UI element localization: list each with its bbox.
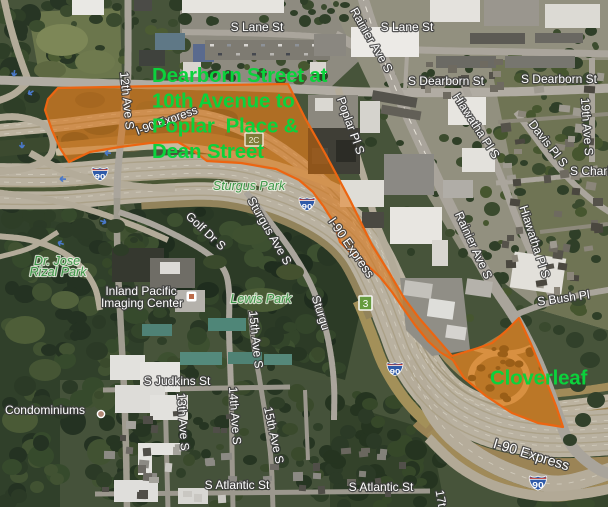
svg-text:Cloverleaf: Cloverleaf	[490, 367, 588, 390]
svg-text:Rizal Park: Rizal Park	[30, 265, 88, 279]
svg-text:90: 90	[95, 172, 106, 181]
svg-text:17t: 17t	[433, 489, 450, 507]
svg-text:S Atlantic St: S Atlantic St	[205, 478, 270, 492]
svg-text:Poplar Place &: Poplar Place &	[152, 115, 299, 138]
svg-text:10th Avenue to: 10th Avenue to	[152, 89, 295, 112]
svg-text:S Charl: S Charl	[570, 164, 608, 178]
svg-text:S Dearborn St: S Dearborn St	[408, 74, 485, 88]
svg-text:Lewis Park: Lewis Park	[230, 292, 292, 306]
svg-text:Imaging Center: Imaging Center	[101, 296, 183, 310]
svg-text:S Lane St: S Lane St	[381, 20, 434, 34]
svg-text:Sturgus Park: Sturgus Park	[213, 179, 286, 193]
svg-text:90: 90	[302, 202, 313, 211]
svg-text:S Dearborn St: S Dearborn St	[521, 72, 598, 86]
svg-text:S Judkins St: S Judkins St	[144, 374, 211, 388]
svg-text:90: 90	[390, 367, 401, 376]
svg-text:Dean Street: Dean Street	[152, 140, 264, 163]
svg-text:Dearborn Street at: Dearborn Street at	[152, 64, 328, 87]
svg-text:S Lane St: S Lane St	[231, 20, 284, 34]
svg-text:90: 90	[532, 480, 544, 490]
svg-text:Condominiums: Condominiums	[5, 403, 85, 417]
svg-text:S Atlantic St: S Atlantic St	[349, 480, 414, 494]
svg-text:3: 3	[363, 299, 369, 310]
